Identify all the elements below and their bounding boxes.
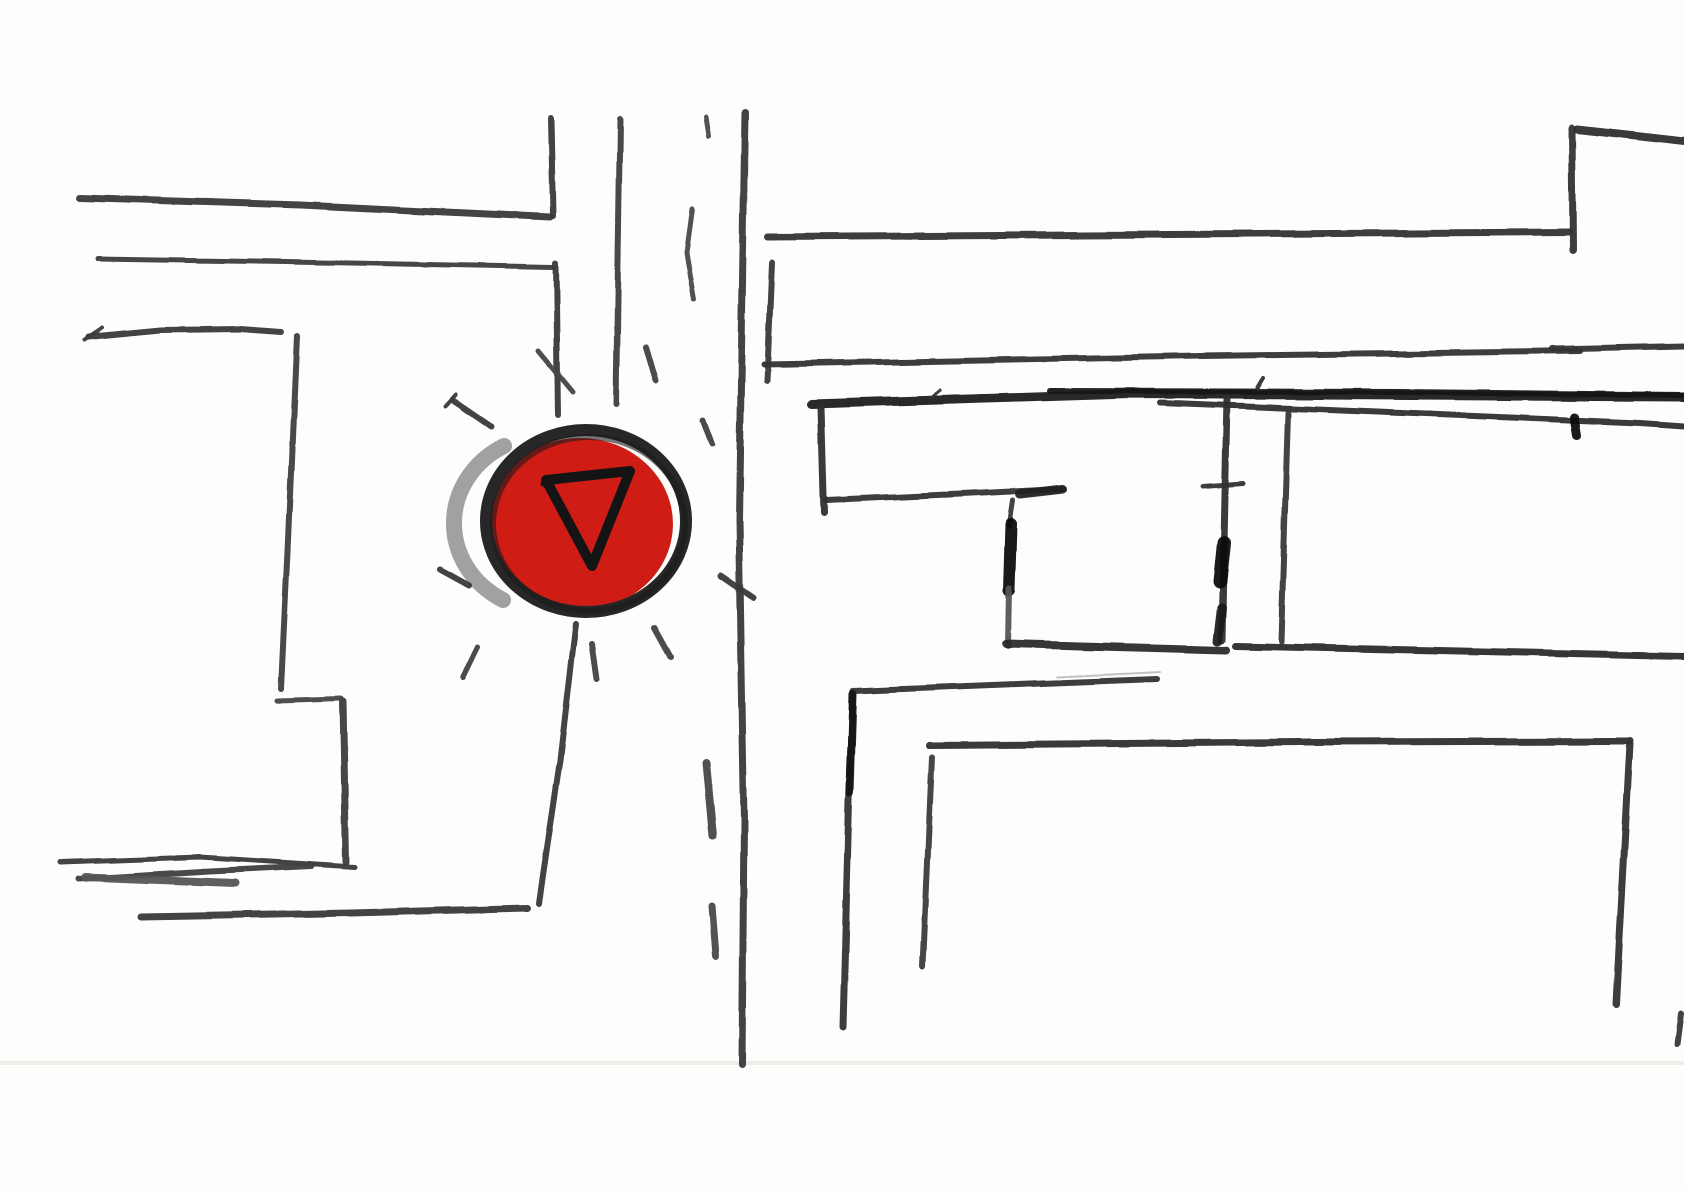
east-thick-nub bbox=[1574, 417, 1577, 435]
sketch-map-page bbox=[0, 0, 1684, 1190]
mid-vertical-1-tick bbox=[1203, 483, 1243, 486]
boxa-left-vertical bbox=[821, 407, 824, 513]
hand-drawn-map bbox=[0, 0, 1684, 1190]
road-left-edge-mid bbox=[556, 263, 558, 416]
south-line-745 bbox=[929, 741, 1630, 745]
location-marker[interactable] bbox=[454, 430, 686, 612]
southeast-stray bbox=[1677, 1013, 1681, 1044]
mid-vertical-1-foot bbox=[1218, 608, 1222, 641]
road-center-line-upper bbox=[616, 119, 620, 404]
east-top-corner-vertical bbox=[1572, 128, 1573, 250]
boxa-right-vertical-black bbox=[1009, 524, 1011, 590]
east-top-line bbox=[768, 232, 1569, 237]
west-l-vertical bbox=[343, 702, 346, 862]
west-l-horizontal bbox=[277, 699, 341, 701]
boxa-bottom-wedge bbox=[1020, 489, 1063, 494]
road-top-dash bbox=[706, 117, 709, 136]
south-building-left-dark bbox=[850, 694, 853, 792]
road-center-dash-2 bbox=[712, 906, 716, 956]
boxa-right-vertical-low bbox=[1008, 588, 1009, 646]
east-line-b2 bbox=[1552, 346, 1684, 349]
paper-crease-line bbox=[0, 1061, 1684, 1065]
road-left-edge-upper bbox=[551, 118, 553, 216]
mid-vertical-1-blob bbox=[1220, 543, 1224, 582]
